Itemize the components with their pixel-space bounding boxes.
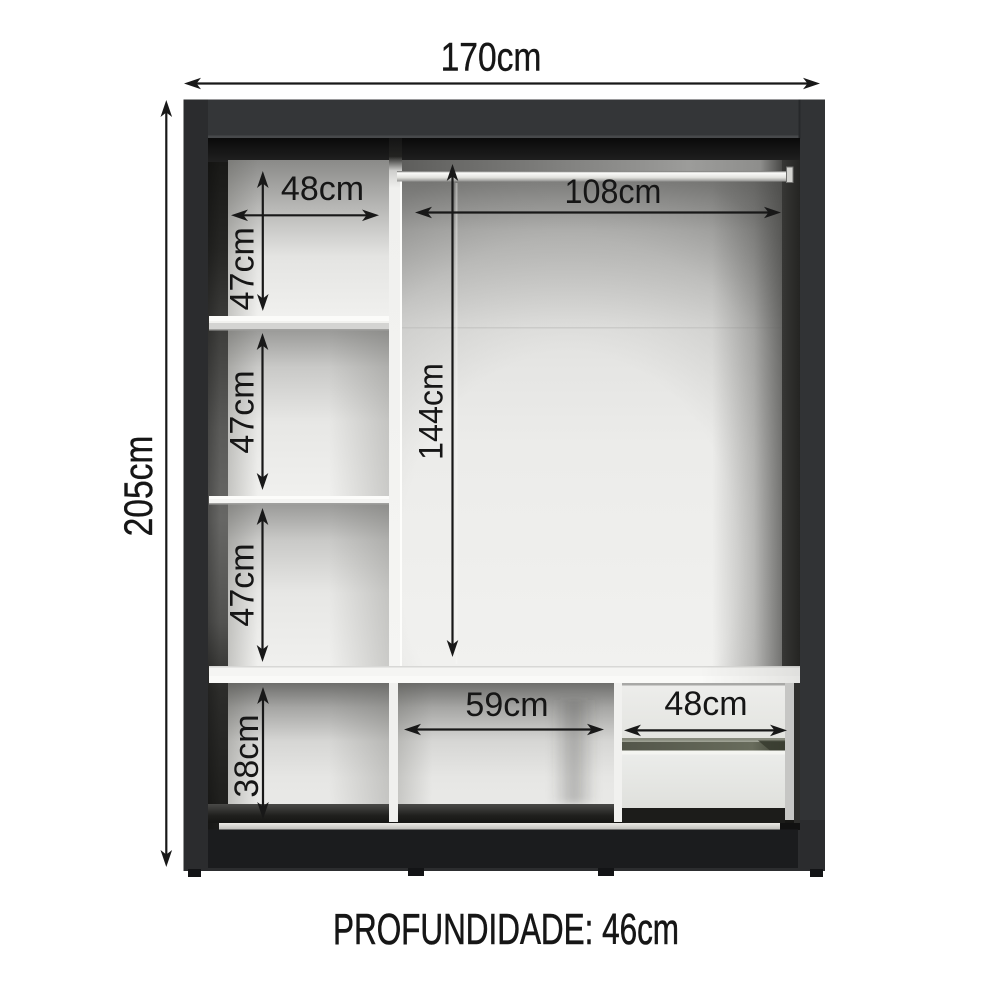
svg-text:59cm: 59cm [465,686,548,724]
svg-text:48cm: 48cm [664,685,747,723]
svg-text:47cm: 47cm [224,227,262,310]
svg-text:48cm: 48cm [281,170,364,208]
svg-text:170cm: 170cm [441,35,542,79]
svg-text:47cm: 47cm [224,543,262,626]
svg-text:108cm: 108cm [565,173,662,211]
svg-text:PROFUNDIDADE: 46cm: PROFUNDIDADE: 46cm [333,905,679,954]
svg-text:144cm: 144cm [413,363,451,460]
svg-text:38cm: 38cm [228,714,266,797]
svg-text:205cm: 205cm [116,436,160,537]
svg-text:47cm: 47cm [224,370,262,453]
